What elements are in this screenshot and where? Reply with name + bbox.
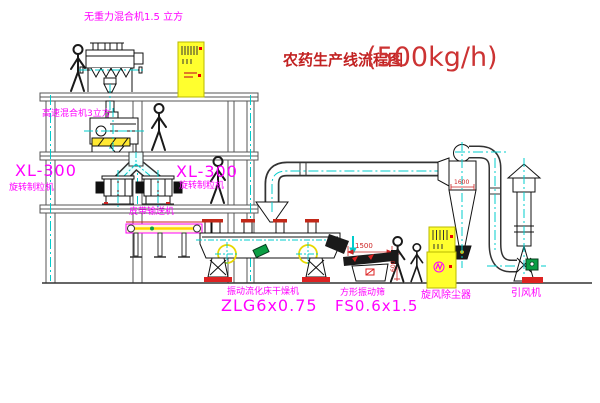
label-granulator-right-name: 旋转制粒机	[179, 182, 224, 191]
belt-conveyor	[126, 222, 202, 257]
control-cabinet-2	[427, 227, 456, 288]
indicator-light	[199, 47, 202, 50]
label-granulator-left-name: 旋转制粒机	[9, 184, 54, 193]
control-cabinet-1	[178, 42, 204, 97]
label-fan: 引风机	[511, 289, 541, 299]
person-near-cabinet	[411, 244, 422, 282]
granulator-left	[96, 170, 134, 208]
fluid-bed-dryer	[196, 219, 349, 282]
label-sieve-model: FS0.6x1.5	[335, 299, 418, 314]
label-high-speed-mixer: 高速混合机3立方	[42, 110, 111, 119]
diagram-capacity: (500kg/h)	[366, 44, 498, 71]
dim-sieve-height: 600	[391, 261, 397, 272]
riser-duct	[256, 162, 448, 223]
label-granulator-left-model: XL-300	[15, 163, 77, 179]
label-dryer-model: ZLG6x0.75	[221, 298, 318, 314]
process-flow-diagram: 农药生产线流程图 (500kg/h) 无重力混合机1.5 立方 高速混合机3立方…	[0, 0, 600, 403]
dim-cyclone: 1600	[454, 180, 469, 186]
indicator-light	[450, 235, 453, 238]
label-gravity-mixer: 无重力混合机1.5 立方	[84, 13, 183, 23]
label-belt-conveyor: 皮带输送机	[129, 208, 174, 217]
label-cyclone: 旋风除尘器	[421, 291, 471, 301]
person-second-floor	[152, 104, 166, 150]
label-granulator-right-model: XL-300	[176, 164, 238, 180]
dim-sieve-length: 1500	[355, 243, 373, 250]
